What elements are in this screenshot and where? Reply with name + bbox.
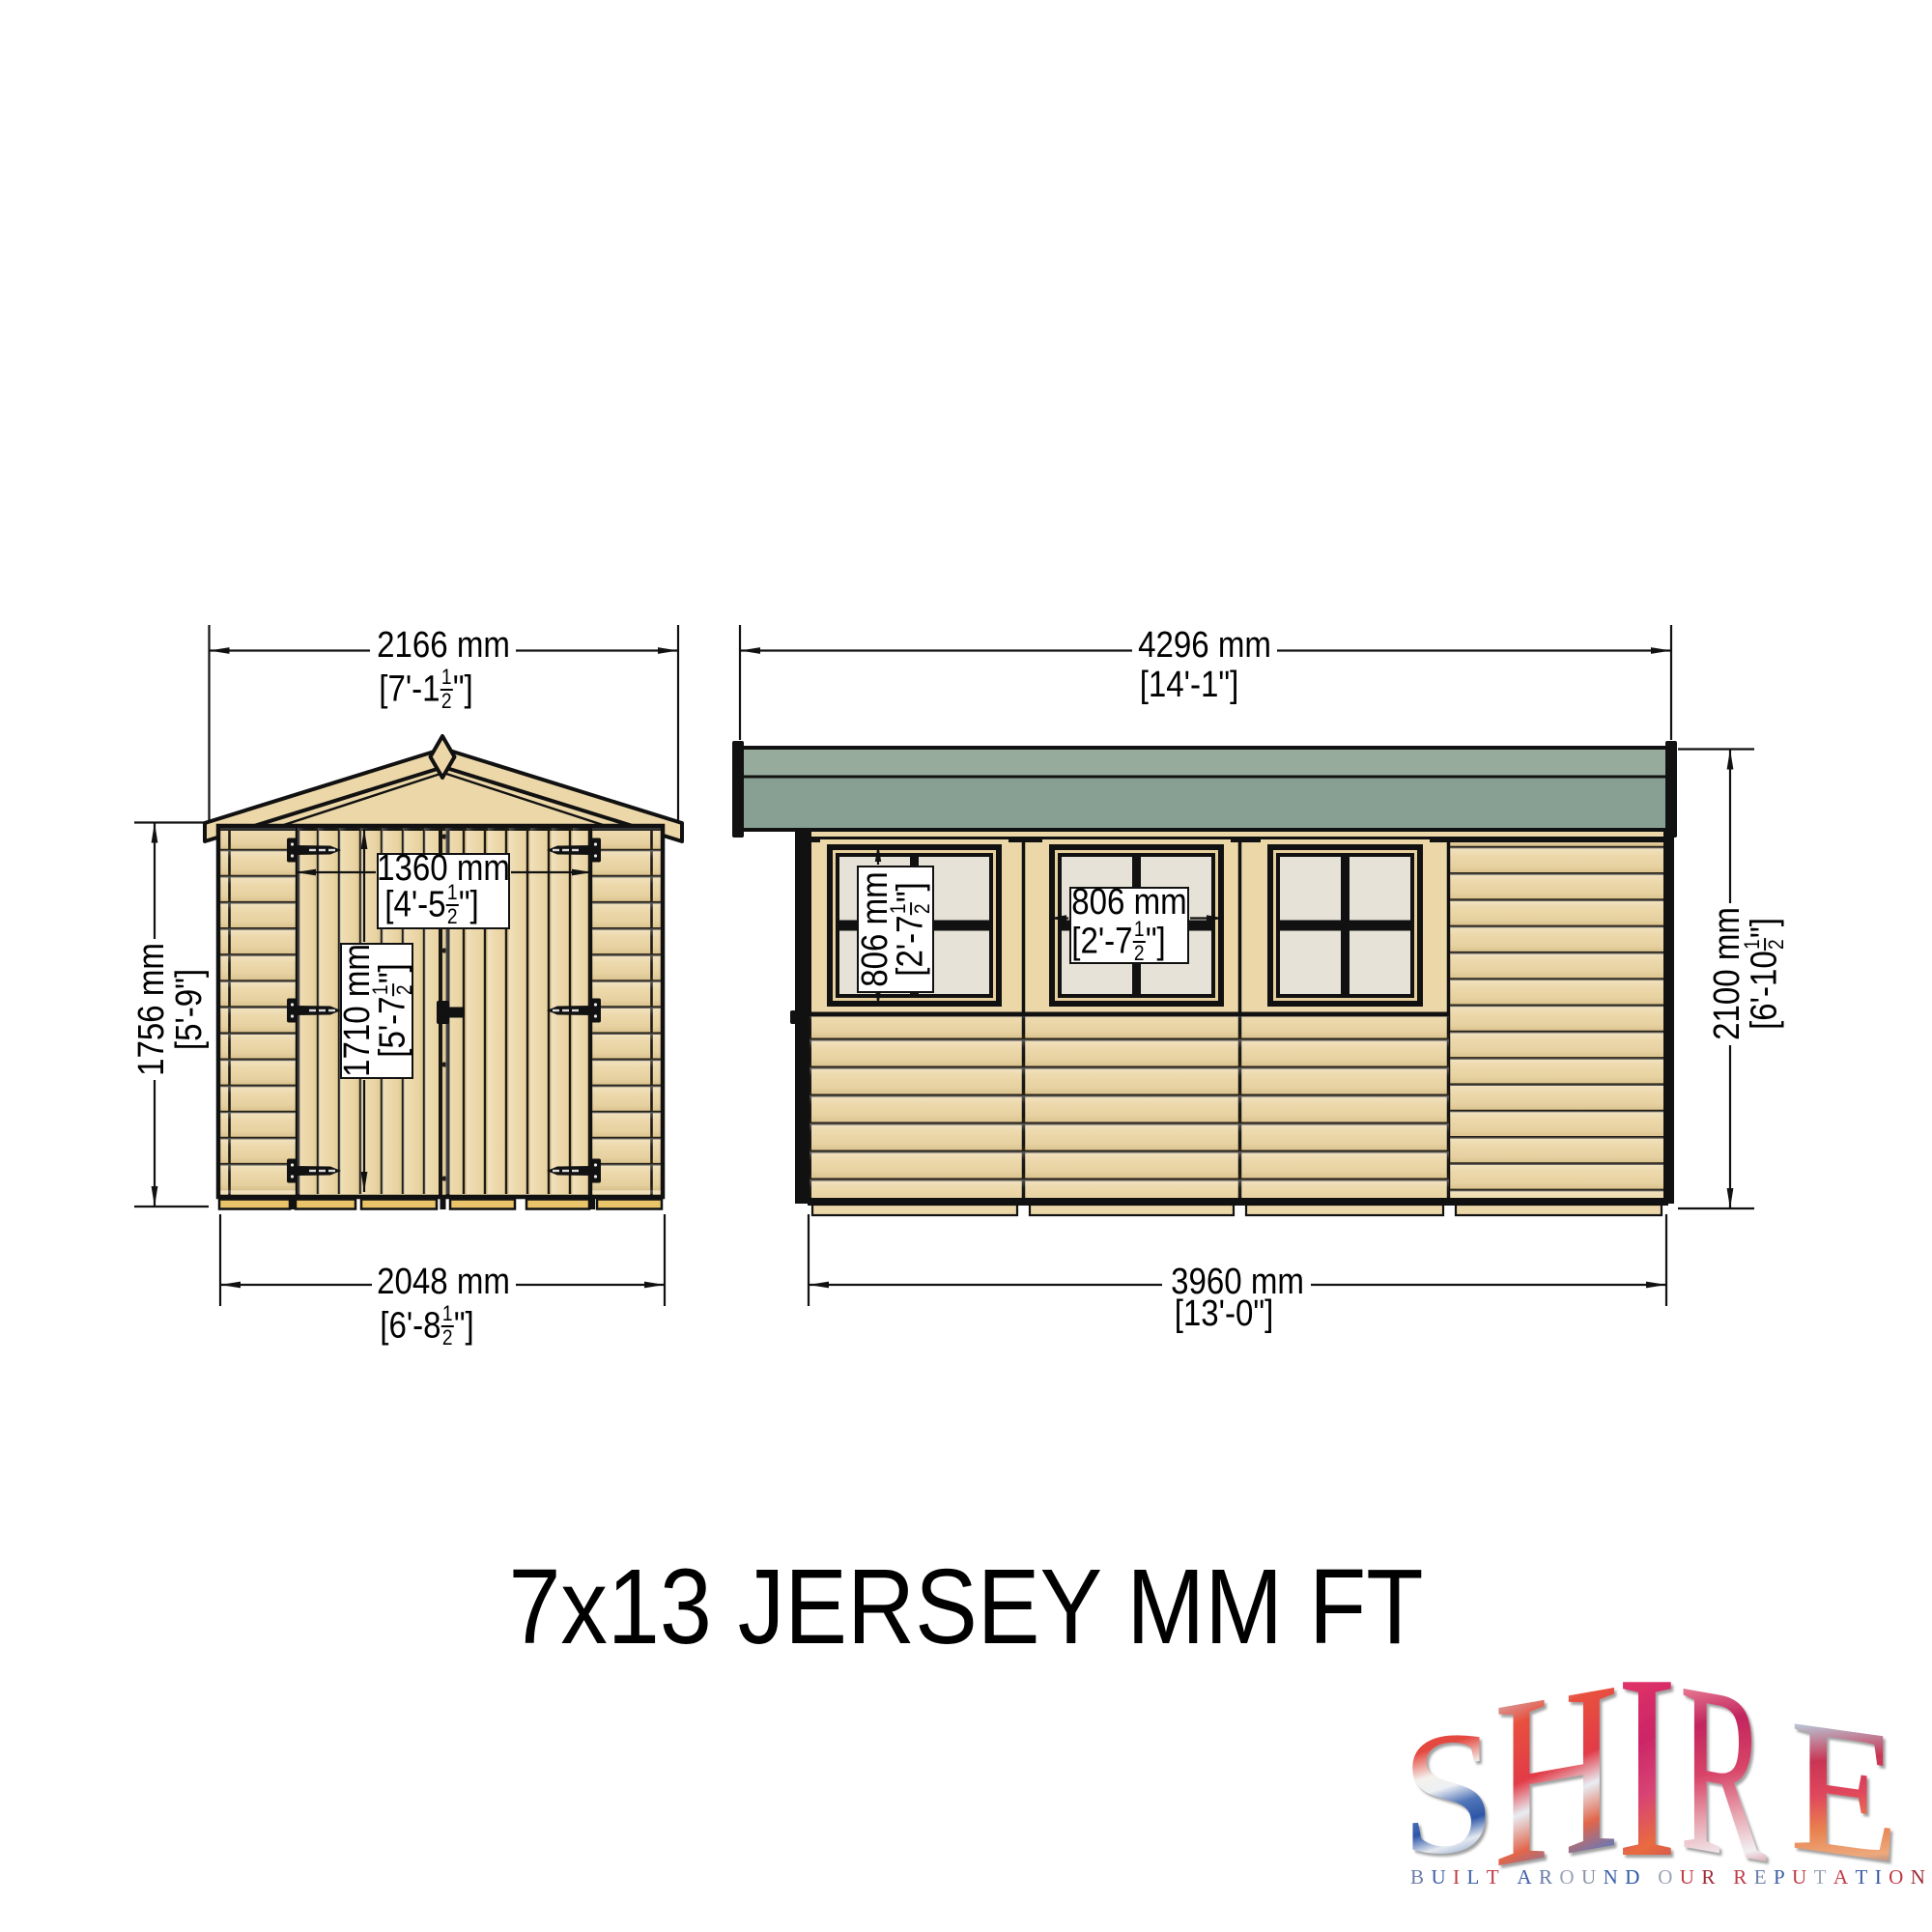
svg-text:S: S bbox=[1402, 1692, 1496, 1892]
